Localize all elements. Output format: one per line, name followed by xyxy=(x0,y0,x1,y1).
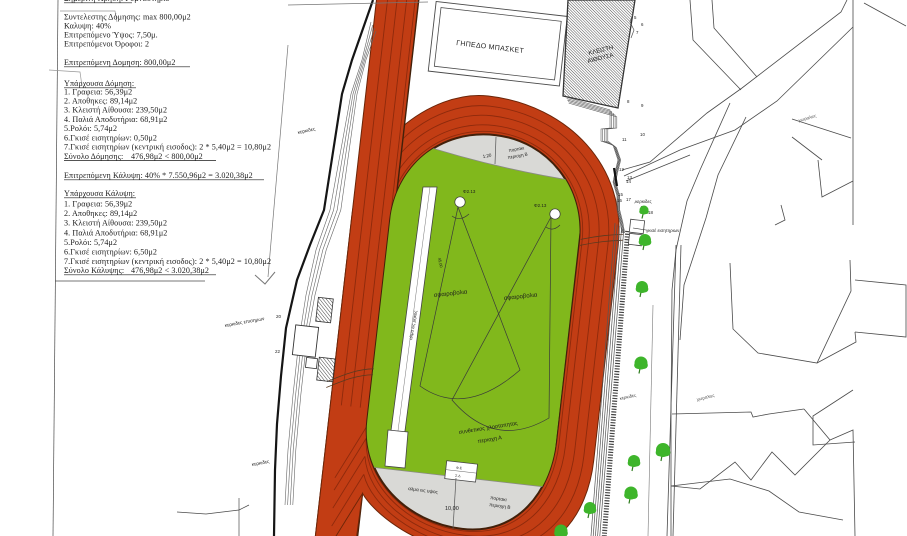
svg-text:Σύνολο Δόμησης:: Σύνολο Δόμησης: xyxy=(64,152,123,161)
svg-text:16: 16 xyxy=(617,198,622,203)
svg-text:4. Παλιά Αποδυτήρια: 68,91μ2: 4. Παλιά Αποδυτήρια: 68,91μ2 xyxy=(64,115,167,124)
svg-text:17: 17 xyxy=(626,197,631,202)
svg-text:7.Γκισέ εισητηρίων (κεντρική ε: 7.Γκισέ εισητηρίων (κεντρική εισοδος): 2… xyxy=(64,143,271,152)
svg-text:3. Κλειστή Αίθουσα: 239,50μ2: 3. Κλειστή Αίθουσα: 239,50μ2 xyxy=(64,219,167,228)
svg-text:Καλυψη: 40%: Καλυψη: 40% xyxy=(64,22,111,31)
svg-text:20: 20 xyxy=(276,314,282,319)
svg-text:Συντελεστης Δόμησης: max 800,0: Συντελεστης Δόμησης: max 800,00μ2 xyxy=(64,13,191,22)
svg-text:10: 10 xyxy=(640,132,645,137)
svg-text:2. Αποθηκες: 89,14μ2: 2. Αποθηκες: 89,14μ2 xyxy=(64,209,137,218)
svg-text:15: 15 xyxy=(618,192,623,197)
svg-text:12: 12 xyxy=(619,167,624,172)
svg-text:1. Γραφεια: 56,39μ2: 1. Γραφεια: 56,39μ2 xyxy=(64,87,132,96)
svg-text:4. Παλιά Αποδυτήρια: 68,91μ2: 4. Παλιά Αποδυτήρια: 68,91μ2 xyxy=(64,228,167,237)
svg-text:5.Ρολόι: 5,74μ2: 5.Ρολόι: 5,74μ2 xyxy=(64,238,117,247)
svg-text:14: 14 xyxy=(626,179,631,184)
svg-text:Φ2.13: Φ2.13 xyxy=(463,189,476,194)
svg-text:6.Γκισέ εισητηρίων: 0,50μ2: 6.Γκισέ εισητηρίων: 0,50μ2 xyxy=(64,133,157,142)
svg-text:Επιτρεπόμενη Δομηση: 800,00μ2: Επιτρεπόμενη Δομηση: 800,00μ2 xyxy=(64,58,175,67)
svg-text:18: 18 xyxy=(648,210,653,215)
svg-text:3. Κλειστή Αίθουσα: 239,50μ2: 3. Κλειστή Αίθουσα: 239,50μ2 xyxy=(64,106,167,115)
svg-text:Υπάρχουσα Κάλυψη:: Υπάρχουσα Κάλυψη: xyxy=(64,189,135,198)
svg-text:5.Ρολόι: 5,74μ2: 5.Ρολόι: 5,74μ2 xyxy=(64,124,117,133)
svg-text:6.Γκισέ εισητηρίων: 6,50μ2: 6.Γκισέ εισητηρίων: 6,50μ2 xyxy=(64,248,157,257)
svg-text:11: 11 xyxy=(622,137,627,142)
svg-text:22: 22 xyxy=(275,349,281,354)
svg-text:,κερκιδες: ,κερκιδες xyxy=(634,199,652,204)
svg-text:476,98μ2 < 800,00μ2: 476,98μ2 < 800,00μ2 xyxy=(131,152,203,161)
svg-text:Επιτρεπόμενη Κάλυψη: 40% * 7.5: Επιτρεπόμενη Κάλυψη: 40% * 7.550,96μ2 = … xyxy=(64,171,253,180)
svg-text:1. Γραφεια: 56,39μ2: 1. Γραφεια: 56,39μ2 xyxy=(64,200,132,209)
svg-text:Φ.Ε: Φ.Ε xyxy=(456,466,463,471)
svg-text:7.Γκισέ εισητηρίων (κεντρική ε: 7.Γκισέ εισητηρίων (κεντρική εισοδος): 2… xyxy=(64,257,271,266)
svg-text:Σύνολο Κάλυψης:: Σύνολο Κάλυψης: xyxy=(64,266,124,275)
svg-text:10,00: 10,00 xyxy=(445,506,459,512)
svg-text:476,98μ2 < 3.020,38μ2: 476,98μ2 < 3.020,38μ2 xyxy=(131,266,209,275)
svg-text:Επιτρεπόμενο Ύψος: 7,50μ.: Επιτρεπόμενο Ύψος: 7,50μ. xyxy=(64,31,158,40)
svg-text:2. Αποθηκες: 89,14μ2: 2. Αποθηκες: 89,14μ2 xyxy=(64,97,137,106)
svg-text:Φ2.13: Φ2.13 xyxy=(534,203,547,208)
svg-text:Επιτρεπόμενοι Όροφοι: 2: Επιτρεπόμενοι Όροφοι: 2 xyxy=(64,40,149,49)
svg-text:γκισέ εισητηριων: γκισέ εισητηριων xyxy=(646,227,680,233)
